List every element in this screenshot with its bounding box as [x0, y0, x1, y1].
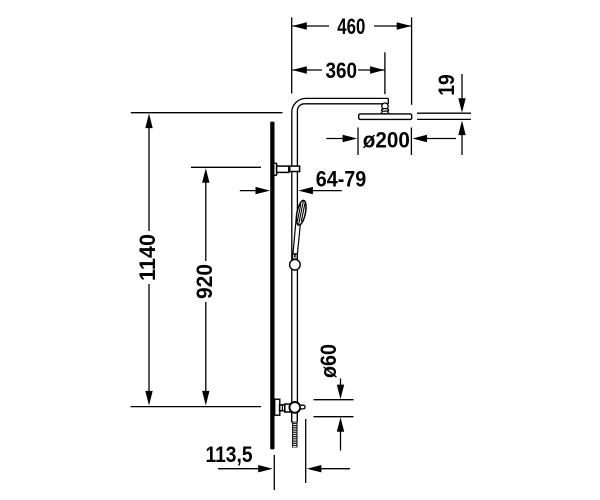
svg-text:19: 19 — [434, 74, 459, 96]
svg-text:360: 360 — [326, 58, 358, 83]
svg-text:460: 460 — [337, 14, 365, 39]
svg-text:ø200: ø200 — [363, 128, 410, 153]
svg-text:113,5: 113,5 — [206, 442, 253, 467]
svg-text:ø60: ø60 — [316, 344, 341, 378]
svg-text:1140: 1140 — [135, 234, 160, 281]
svg-text:64-79: 64-79 — [316, 167, 367, 192]
svg-text:920: 920 — [192, 264, 217, 299]
